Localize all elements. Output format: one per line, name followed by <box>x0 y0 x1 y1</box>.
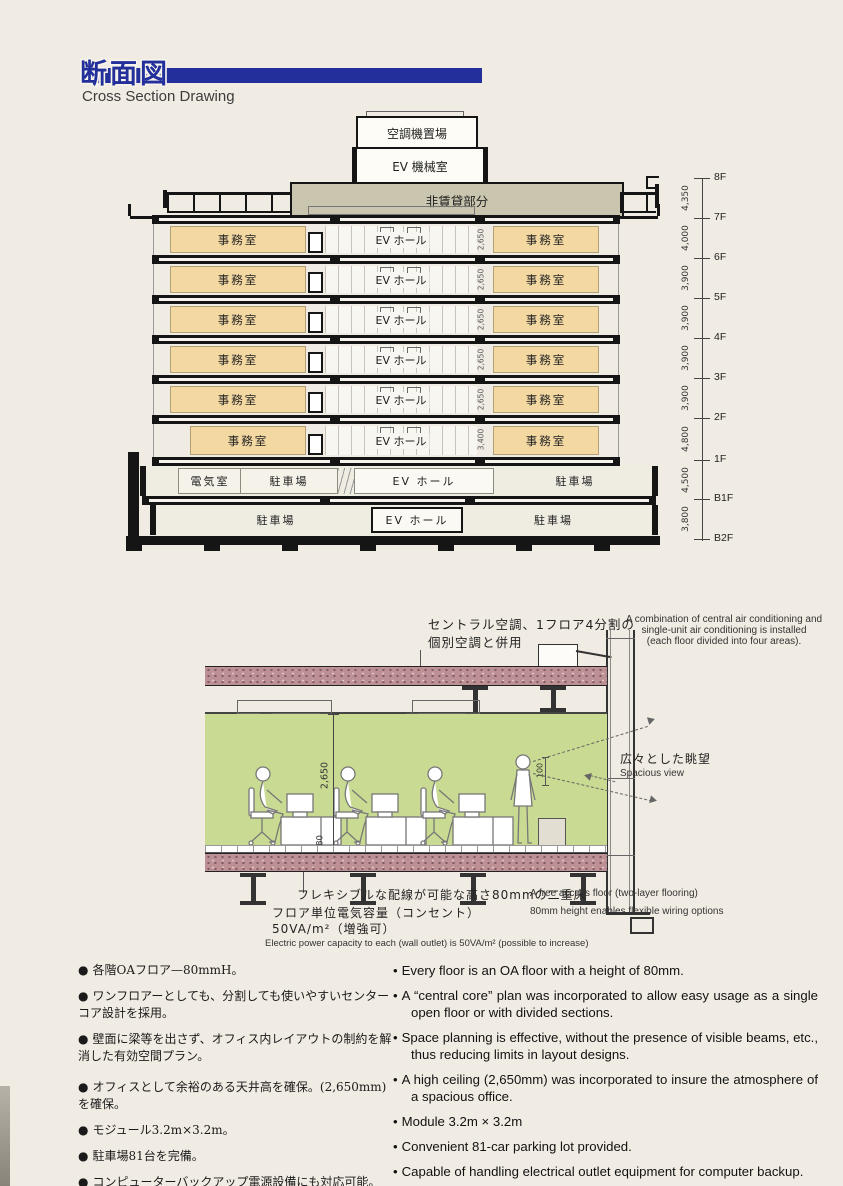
floor-1f: 事務室 EV ホール 3,400 事務室 <box>160 424 612 457</box>
page-title-jp: 断面図 <box>80 52 170 91</box>
floor-5f: 事務室 EV ホール 2,650 事務室 <box>160 264 612 295</box>
bullet-icon: • <box>393 988 398 1003</box>
bullet-icon: • <box>393 1164 398 1179</box>
ac-note-en-line2: single-unit air conditioning is installe… <box>605 625 843 636</box>
window-transom <box>606 638 635 639</box>
level-dim-label: 3,900 <box>681 336 691 380</box>
ceiling-frame <box>237 700 332 714</box>
parking-cell: 駐車場 <box>240 468 338 494</box>
floor-slab <box>152 215 620 224</box>
floor-note-en1: A free access floor (two-layer flooring) <box>530 888 698 899</box>
window-dim-label: 100 <box>536 761 545 781</box>
office-label: 事務室 <box>218 352 259 368</box>
feature-item-en: •A “central core” plan was incorporated … <box>393 987 818 1021</box>
ac-note-en-line1: A combination of central air conditionin… <box>605 614 843 625</box>
basement-2f: 駐車場 EV ホール 駐車場 <box>150 505 658 535</box>
floor-slab <box>152 255 620 264</box>
view-ray-arrow <box>649 795 658 804</box>
floor-2f: 事務室 EV ホール 2,650 事務室 <box>160 384 612 415</box>
core-door <box>308 272 323 293</box>
ac-equipment-room: 空調機置場 <box>356 116 478 151</box>
ev-hall-label: EV ホール <box>373 433 430 449</box>
level-label: 2F <box>714 411 726 423</box>
feature-item-en: •A high ceiling (2,650mm) was incorporat… <box>393 1071 818 1105</box>
office-room-left: 事務室 <box>170 346 306 373</box>
parking-cell: 駐車場 <box>186 507 366 533</box>
tick <box>694 338 710 339</box>
office-room-right: 事務室 <box>493 426 599 455</box>
bullet-icon: • <box>393 1139 398 1154</box>
level-label: 3F <box>714 371 726 383</box>
ceiling-dim-label: 2,650 <box>477 305 486 335</box>
feature-item-jp: ●コンピューターバックアップ電源設備にも対応可能。 <box>78 1174 396 1186</box>
ev-hall: EV ホール <box>325 306 477 333</box>
ceiling-dim-label: 2,650 <box>477 225 486 255</box>
level-dim-label: 4,800 <box>681 417 691 461</box>
core-door <box>308 392 323 413</box>
feature-text: 各階OAフロア—80mmH。 <box>92 963 243 977</box>
level-scale: 8F 7F 6F 5F 4F 3F 2F 1F B1F B2F 4,350 4,… <box>666 165 796 555</box>
feature-text: モジュール3.2m×3.2m。 <box>92 1123 234 1137</box>
bullet-icon: ● <box>78 1123 88 1137</box>
roof-ledge-end-right <box>657 204 660 216</box>
bullet-icon: ● <box>78 1080 88 1094</box>
office-room-right: 事務室 <box>493 386 599 413</box>
ev-hall-label: EV ホール <box>373 392 430 408</box>
office-label: 事務室 <box>526 352 567 368</box>
feature-item-en: •Module 3.2m × 3.2m <box>393 1113 818 1130</box>
power-note-jp2: 50VA/m²（増強可） <box>272 920 395 937</box>
parapet-flag-right <box>646 176 659 189</box>
floor-4f: 事務室 EV ホール 2,650 事務室 <box>160 304 612 335</box>
window-mullion <box>610 630 611 912</box>
feature-text: 駐車場81台を完備。 <box>92 1149 203 1163</box>
view-label-en: Spacious view <box>620 768 684 779</box>
office-room-right: 事務室 <box>493 346 599 373</box>
parking-label: 駐車場 <box>270 473 309 489</box>
feature-item-en: •Space planning is effective, without th… <box>393 1029 818 1063</box>
ev-hall-label: EV ホール <box>373 312 430 328</box>
tick <box>694 378 710 379</box>
ev-hall: EV ホール <box>325 266 477 293</box>
feature-item-en: •Convenient 81-car parking lot provided. <box>393 1138 818 1155</box>
foundation <box>126 536 660 545</box>
parking-label: 駐車場 <box>534 512 573 528</box>
basement-wall-left <box>128 452 139 536</box>
interior-section: セントラル空調、1フロア4分割の 個別空調と併用 A combination o… <box>200 630 843 960</box>
ev-machine-room: EV 機械室 <box>352 147 488 186</box>
level-dim-label: 3,900 <box>681 256 691 300</box>
parking-label: 駐車場 <box>257 512 296 528</box>
ceiling-dim-label: 2,650 <box>477 385 486 415</box>
bullet-icon: • <box>393 963 398 978</box>
roof-ledge-end-left <box>128 204 131 216</box>
level-dim-label: 4,500 <box>681 458 691 502</box>
ev-hall: EV ホール <box>325 346 477 373</box>
foundation-pads <box>126 545 660 551</box>
level-label: 6F <box>714 251 726 263</box>
office-label: 事務室 <box>526 272 567 288</box>
perimeter-ac-unit <box>538 818 566 847</box>
level-label: 4F <box>714 331 726 343</box>
bullet-icon: ● <box>78 963 88 977</box>
level-label: 7F <box>714 211 726 223</box>
ac-note-jp-line1: セントラル空調、1フロア4分割の <box>428 614 635 633</box>
ac-note-leader <box>420 650 421 666</box>
feature-text: Module 3.2m × 3.2m <box>402 1114 523 1129</box>
feature-text: Capable of handling electrical outlet eq… <box>402 1164 804 1179</box>
tick <box>694 499 710 500</box>
floor-slab <box>142 496 656 505</box>
steel-beam <box>540 686 566 712</box>
level-label: B1F <box>714 492 733 504</box>
floor-slab <box>152 415 620 424</box>
office-label: 事務室 <box>218 312 259 328</box>
feature-item-jp: ●モジュール3.2m×3.2m。 <box>78 1122 396 1139</box>
office-label: 事務室 <box>228 433 269 449</box>
upper-floor-slab <box>205 666 607 686</box>
office-room-right: 事務室 <box>493 226 599 253</box>
feature-item-jp: ●オフィスとして余裕のある天井高を確保。(2,650mm)を確保。 <box>78 1079 396 1113</box>
ceiling-height-label: 2,650 <box>320 754 331 798</box>
basement-1f: 電気室 駐車場 EV ホール 駐車場 <box>140 466 658 496</box>
feature-item-jp: ●駐車場81台を完備。 <box>78 1148 396 1165</box>
page-edge-shadow <box>0 1086 10 1186</box>
office-room-left: 事務室 <box>170 266 306 293</box>
ceiling-dim-label: 2,650 <box>477 345 486 375</box>
ev-hall: EV ホール <box>325 226 477 253</box>
level-label: B2F <box>714 532 733 544</box>
feature-text: Space planning is effective, without the… <box>402 1030 818 1062</box>
bullet-icon: ● <box>78 989 88 1003</box>
tick <box>694 178 710 179</box>
office-label: 事務室 <box>526 392 567 408</box>
wall-footing-block <box>630 917 654 934</box>
parking-cell: 駐車場 <box>496 468 654 494</box>
office-room-left: 事務室 <box>190 426 306 455</box>
bullet-icon: • <box>393 1114 398 1129</box>
bullet-icon: • <box>393 1072 398 1087</box>
ev-hall-label: EV ホール <box>393 473 456 489</box>
stair-hatch <box>338 468 354 494</box>
office-room-left: 事務室 <box>170 226 306 253</box>
bullet-icon: ● <box>78 1175 88 1186</box>
office-room-right: 事務室 <box>493 306 599 333</box>
lower-floor-slab <box>205 853 607 872</box>
office-room-left: 事務室 <box>170 386 306 413</box>
ac-note-jp-line2: 個別空調と併用 <box>428 632 523 651</box>
core-door <box>308 434 323 455</box>
parapet-left <box>163 190 167 208</box>
raised-floor-band <box>205 845 607 853</box>
tick <box>694 298 710 299</box>
level-dim-label: 3,800 <box>681 497 691 541</box>
feature-item-en: •Every floor is an OA floor with a heigh… <box>393 962 818 979</box>
feature-list-en: •Every floor is an OA floor with a heigh… <box>393 962 818 1186</box>
office-label: 事務室 <box>526 312 567 328</box>
ev-machine-label: EV 機械室 <box>392 158 448 175</box>
feature-text: ワンフロアーとしても、分割しても使いやすいセンターコア設計を採用。 <box>78 989 389 1020</box>
bullet-icon: • <box>393 1030 398 1045</box>
power-note-jp1: フロア単位電気容量（コンセント） <box>272 904 480 921</box>
view-label-jp: 広々とした眺望 <box>620 750 711 767</box>
tick <box>542 785 549 786</box>
bullet-icon: ● <box>78 1149 88 1163</box>
ev-hall-label: EV ホール <box>386 512 449 528</box>
bullet-icon: ● <box>78 1032 88 1046</box>
feature-text: Every floor is an OA floor with a height… <box>402 963 684 978</box>
parking-cell: 駐車場 <box>466 507 641 533</box>
floor-3f: 事務室 EV ホール 2,650 事務室 <box>160 344 612 375</box>
floor-slab <box>152 375 620 384</box>
feature-text: 壁面に梁等を出さず、オフィス内レイアウトの制約を解消した有効空間プラン。 <box>78 1032 391 1063</box>
office-label: 事務室 <box>218 232 259 248</box>
tick <box>694 418 710 419</box>
office-label: 事務室 <box>218 272 259 288</box>
ev-hall-b1: EV ホール <box>354 468 494 494</box>
ceiling-dim-label: 3,400 <box>477 425 486 455</box>
ev-hall: EV ホール <box>325 386 477 413</box>
office-label: 事務室 <box>526 232 567 248</box>
ceiling-dim-label: 2,650 <box>477 265 486 295</box>
office-room-right: 事務室 <box>493 266 599 293</box>
ac-note-en: A combination of central air conditionin… <box>605 614 843 647</box>
office-label: 事務室 <box>218 392 259 408</box>
window-transom <box>606 855 635 856</box>
electric-room-label: 電気室 <box>191 473 230 489</box>
feature-item-jp: ●ワンフロアーとしても、分割しても使いやすいセンターコア設計を採用。 <box>78 988 396 1022</box>
floor-note-en2: 80mm height enables flexible wiring opti… <box>530 906 723 917</box>
parking-label: 駐車場 <box>556 473 595 489</box>
electric-room: 電気室 <box>178 468 242 494</box>
core-door <box>308 232 323 253</box>
steel-beam <box>240 873 266 905</box>
ev-hall: EV ホール <box>325 426 477 455</box>
power-note-en: Electric power capacity to each (wall ou… <box>265 938 588 949</box>
ceiling-dim-line <box>333 714 334 853</box>
feature-text: Convenient 81-car parking lot provided. <box>402 1139 632 1154</box>
feature-text: A high ceiling (2,650mm) was incorporate… <box>402 1072 818 1104</box>
tick <box>694 218 710 219</box>
ceiling-frame <box>412 700 480 714</box>
feature-text: A “central core” plan was incorporated t… <box>402 988 818 1020</box>
ev-hall-label: EV ホール <box>373 272 430 288</box>
ac-equipment-label: 空調機置場 <box>387 125 447 142</box>
core-door <box>308 312 323 333</box>
floor-6f: 事務室 EV ホール 2,650 事務室 <box>160 224 612 255</box>
floor-slab <box>152 335 620 344</box>
tick <box>328 714 339 715</box>
office-label: 事務室 <box>526 433 567 449</box>
window-dim-line <box>545 757 546 785</box>
view-ray-arrow <box>647 715 656 725</box>
tick <box>694 460 710 461</box>
feature-item-en: •Capable of handling electrical outlet e… <box>393 1163 818 1180</box>
ac-note-en-line3: (each floor divided into four areas). <box>605 636 843 647</box>
office-room-left: 事務室 <box>170 306 306 333</box>
tick <box>694 539 710 540</box>
brochure-page: 断面図 Cross Section Drawing 空調機置場 EV 機械室 非… <box>0 0 843 1186</box>
feature-text: コンピューターバックアップ電源設備にも対応可能。 <box>92 1175 380 1186</box>
core-door <box>308 352 323 373</box>
floor-slab <box>152 295 620 304</box>
ev-hall-label: EV ホール <box>373 352 430 368</box>
floor-slab <box>152 457 620 466</box>
level-label: 1F <box>714 453 726 465</box>
level-dim-label: 3,900 <box>681 376 691 420</box>
feature-list-jp: ●各階OAフロア—80mmH。 ●ワンフロアーとしても、分割しても使いやすいセン… <box>78 962 396 1186</box>
scale-line <box>702 178 703 541</box>
level-label: 8F <box>714 171 726 183</box>
feature-text: オフィスとして余裕のある天井高を確保。(2,650mm)を確保。 <box>78 1080 386 1111</box>
tick <box>694 258 710 259</box>
level-dim-label: 3,900 <box>681 296 691 340</box>
ev-hall-b2: EV ホール <box>371 507 463 533</box>
feature-item-jp: ●壁面に梁等を出さず、オフィス内レイアウトの制約を解消した有効空間プラン。 <box>78 1031 396 1065</box>
level-dim-label: 4,350 <box>681 176 691 220</box>
feature-item-jp: ●各階OAフロア—80mmH。 <box>78 962 396 979</box>
level-dim-label: 4,000 <box>681 216 691 260</box>
level-label: 5F <box>714 291 726 303</box>
ev-hall-label: EV ホール <box>373 232 430 248</box>
